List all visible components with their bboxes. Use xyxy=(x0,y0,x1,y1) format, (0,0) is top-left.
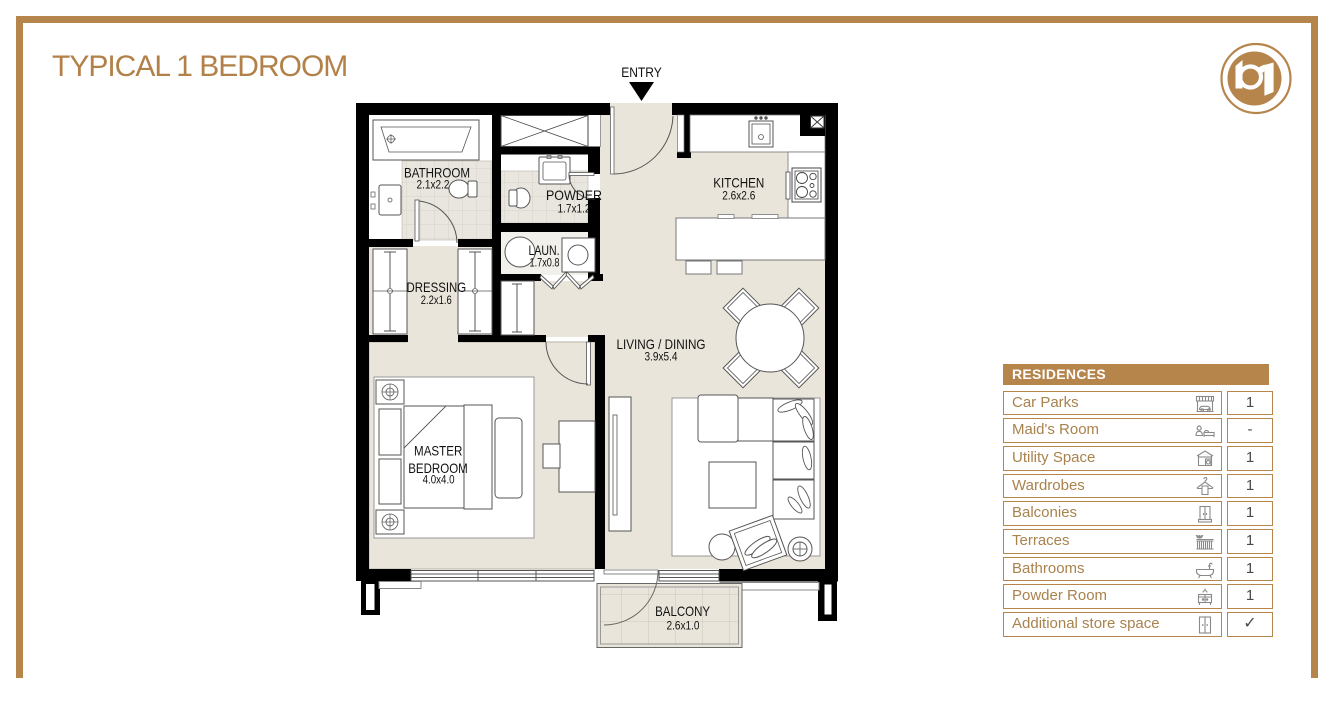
svg-text:2.1x2.2: 2.1x2.2 xyxy=(417,177,450,191)
svg-text:2.6x2.6: 2.6x2.6 xyxy=(722,188,755,202)
svg-text:2.2x1.6: 2.2x1.6 xyxy=(421,293,452,307)
svg-text:2.6x1.0: 2.6x1.0 xyxy=(667,619,700,633)
svg-text:POWDER: POWDER xyxy=(546,187,602,203)
svg-text:1.7x0.8: 1.7x0.8 xyxy=(530,256,560,270)
svg-text:1.7x1.2: 1.7x1.2 xyxy=(558,202,591,216)
svg-text:MASTER: MASTER xyxy=(414,443,462,459)
svg-text:BALCONY: BALCONY xyxy=(655,603,711,619)
svg-text:3.9x5.4: 3.9x5.4 xyxy=(645,350,678,364)
svg-text:ENTRY: ENTRY xyxy=(621,64,662,80)
svg-text:4.0x4.0: 4.0x4.0 xyxy=(423,473,455,487)
